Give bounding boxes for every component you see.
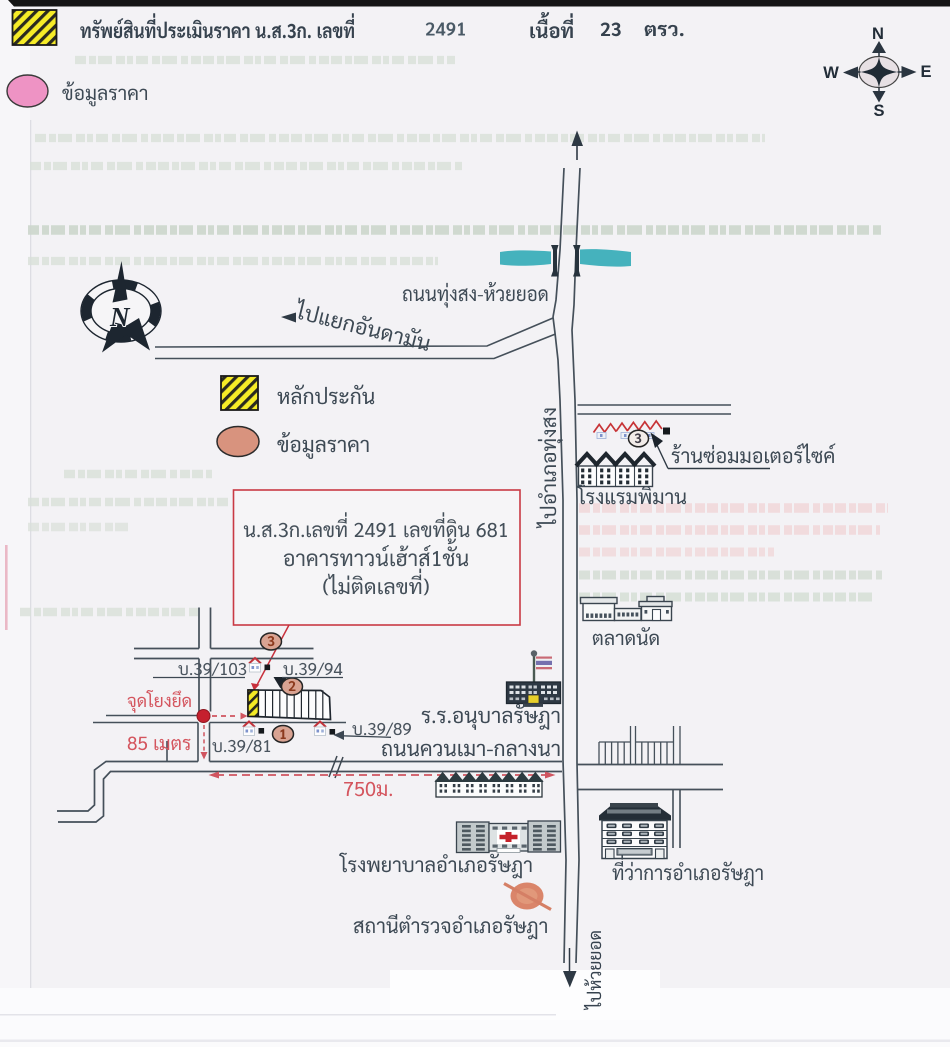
svg-text:N: N [872, 25, 884, 43]
svg-text:W: W [823, 64, 839, 82]
svg-text:E: E [920, 63, 931, 81]
svg-text:S: S [873, 102, 884, 120]
svg-text:N: N [109, 302, 131, 332]
